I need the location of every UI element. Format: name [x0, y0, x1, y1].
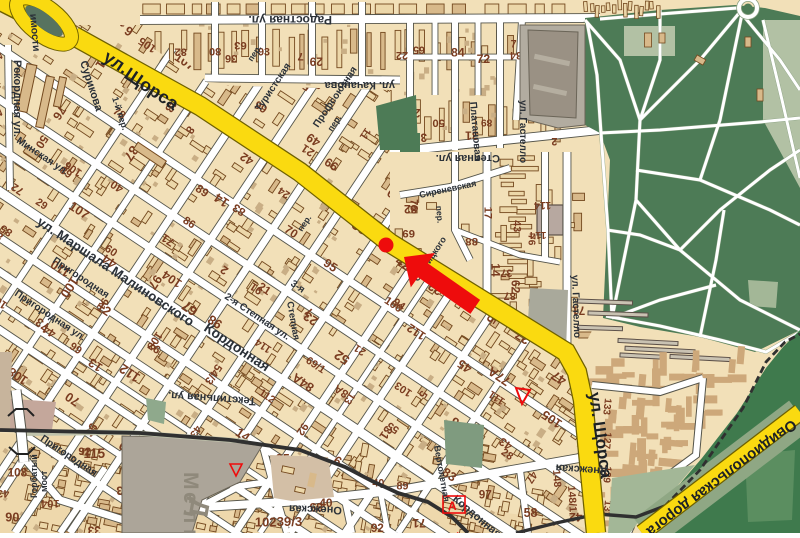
svg-text:82: 82: [404, 202, 418, 216]
svg-text:пер.: пер.: [434, 205, 445, 223]
svg-text:мост: мост: [39, 470, 49, 492]
svg-text:Онежская: Онежская: [289, 502, 342, 516]
svg-text:7: 7: [297, 50, 303, 62]
svg-text:115: 115: [84, 446, 106, 461]
svg-text:80: 80: [209, 45, 221, 57]
svg-text:2: 2: [551, 135, 557, 147]
svg-text:82: 82: [175, 46, 187, 58]
svg-text:63: 63: [234, 39, 247, 51]
svg-text:65: 65: [413, 43, 425, 55]
svg-text:14: 14: [488, 263, 502, 277]
svg-text:Степная ул.: Степная ул.: [436, 152, 500, 164]
svg-text:33: 33: [87, 523, 101, 533]
svg-text:71: 71: [412, 516, 426, 530]
svg-text:114: 114: [529, 229, 546, 241]
svg-text:36: 36: [225, 52, 237, 64]
svg-text:88: 88: [465, 235, 478, 247]
svg-text:Горбатый: Горбатый: [29, 454, 39, 498]
svg-text:58: 58: [524, 506, 538, 520]
svg-text:39/3: 39/3: [277, 514, 303, 529]
svg-text:Рекордная ул.: Рекордная ул.: [11, 60, 23, 137]
svg-text:69: 69: [402, 227, 415, 239]
svg-text:92: 92: [371, 523, 384, 533]
svg-text:ул. Гастелло: ул. Гастелло: [517, 100, 528, 163]
svg-text:72: 72: [477, 52, 491, 66]
svg-text:М: М: [179, 472, 202, 490]
svg-text:ул. Гастелло: ул. Гастелло: [569, 275, 582, 338]
svg-text:89: 89: [397, 481, 409, 493]
svg-text:Радостная ул.: Радостная ул.: [248, 13, 332, 27]
svg-text:22: 22: [396, 49, 408, 61]
svg-text:148: 148: [550, 469, 563, 487]
svg-text:43/1: 43/1: [0, 487, 9, 499]
svg-text:114: 114: [534, 199, 551, 211]
svg-text:90: 90: [5, 511, 19, 525]
svg-text:43: 43: [510, 220, 522, 232]
svg-text:104: 104: [40, 497, 59, 509]
svg-text:108: 108: [8, 467, 28, 480]
svg-text:ь: ь: [179, 529, 202, 533]
svg-text:97: 97: [479, 489, 492, 502]
svg-text:7: 7: [511, 38, 517, 50]
svg-text:17: 17: [482, 207, 494, 219]
svg-text:102: 102: [255, 514, 277, 529]
svg-text:148/1: 148/1: [565, 485, 579, 512]
svg-text:50: 50: [432, 116, 444, 128]
svg-text:84: 84: [451, 46, 465, 60]
svg-text:62: 62: [508, 280, 522, 294]
svg-text:29: 29: [309, 54, 323, 68]
svg-text:89: 89: [481, 117, 493, 128]
